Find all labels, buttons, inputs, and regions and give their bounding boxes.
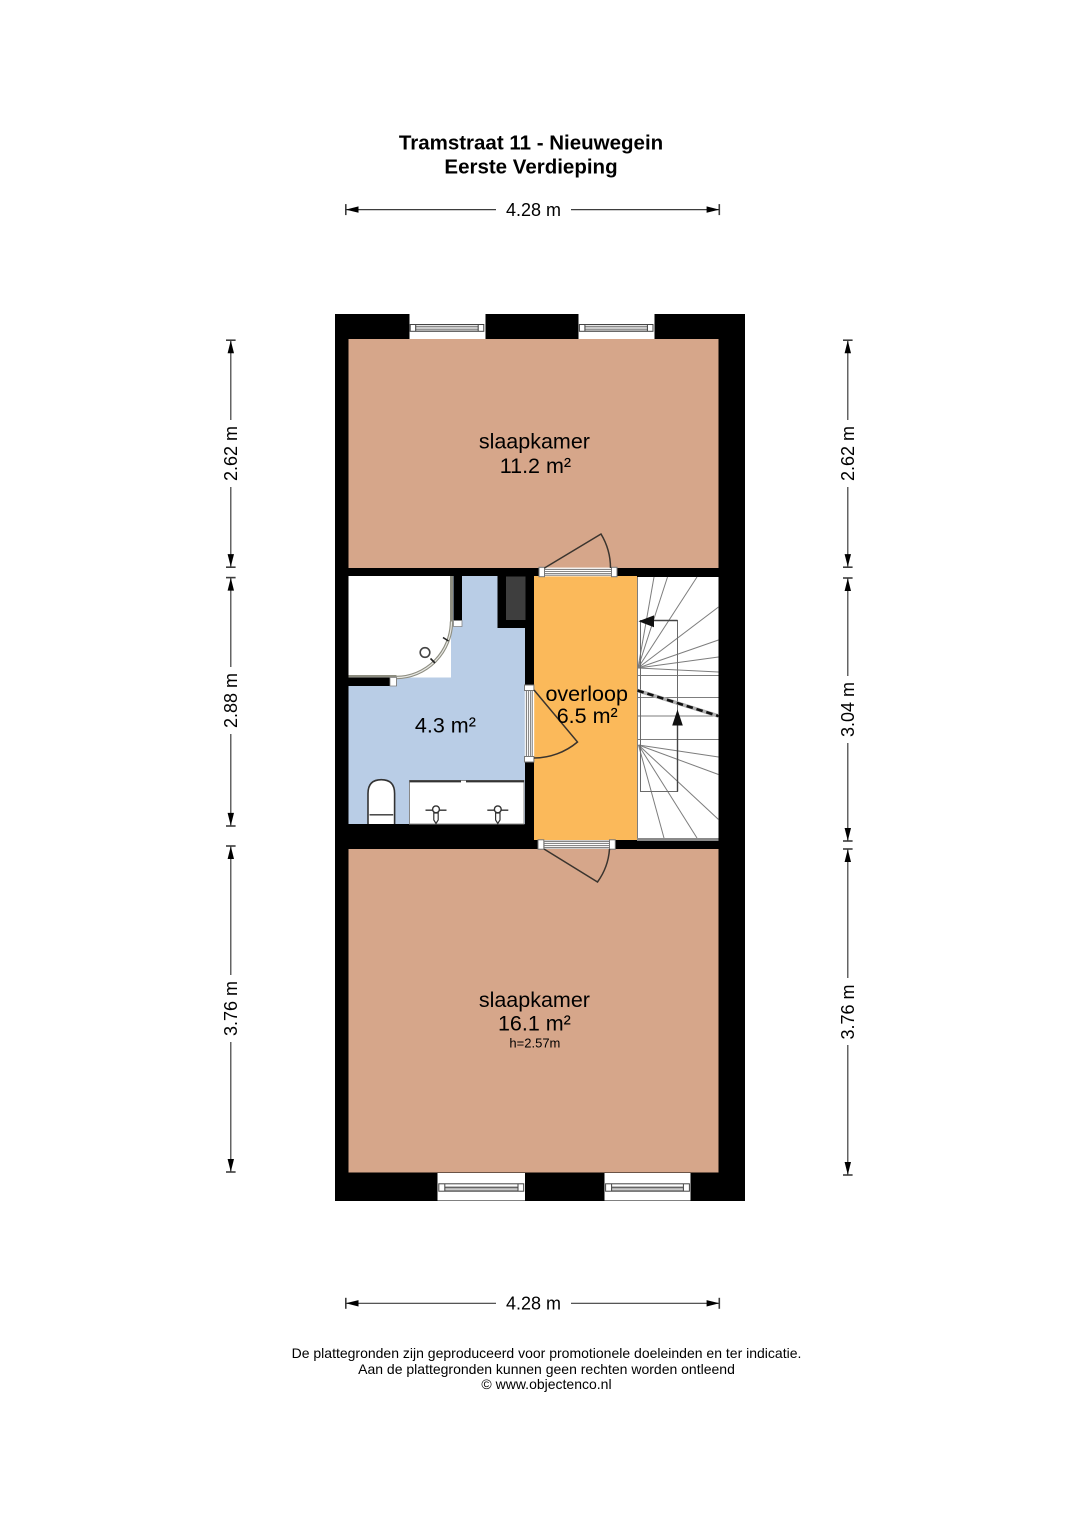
svg-text:© www.objectenco.nl: © www.objectenco.nl — [481, 1376, 611, 1392]
svg-text:11.2 m²: 11.2 m² — [500, 454, 571, 478]
svg-text:3.04 m: 3.04 m — [838, 682, 858, 737]
svg-text:De plattegronden zijn geproduc: De plattegronden zijn geproduceerd voor … — [292, 1345, 802, 1361]
svg-text:4.28 m: 4.28 m — [506, 200, 561, 220]
svg-text:Tramstraat 11 - Nieuwegein: Tramstraat 11 - Nieuwegein — [399, 132, 663, 155]
svg-text:Eerste Verdieping: Eerste Verdieping — [444, 156, 617, 179]
svg-text:3.76 m: 3.76 m — [838, 984, 858, 1039]
svg-text:Aan de plattegronden kunnen ge: Aan de plattegronden kunnen geen rechten… — [358, 1361, 735, 1377]
svg-text:slaapkamer: slaapkamer — [479, 429, 590, 453]
svg-text:4.3 m²: 4.3 m² — [415, 714, 476, 738]
svg-text:6.5 m²: 6.5 m² — [557, 704, 618, 728]
svg-text:2.62 m: 2.62 m — [838, 426, 858, 481]
svg-text:3.76 m: 3.76 m — [221, 981, 241, 1036]
svg-text:h=2.57m: h=2.57m — [509, 1035, 560, 1050]
svg-text:2.88 m: 2.88 m — [221, 673, 241, 728]
svg-text:16.1 m²: 16.1 m² — [498, 1011, 571, 1035]
svg-text:4.28 m: 4.28 m — [506, 1294, 561, 1314]
svg-text:slaapkamer: slaapkamer — [479, 988, 590, 1012]
svg-text:overloop: overloop — [545, 682, 628, 706]
svg-text:2.62 m: 2.62 m — [221, 426, 241, 481]
